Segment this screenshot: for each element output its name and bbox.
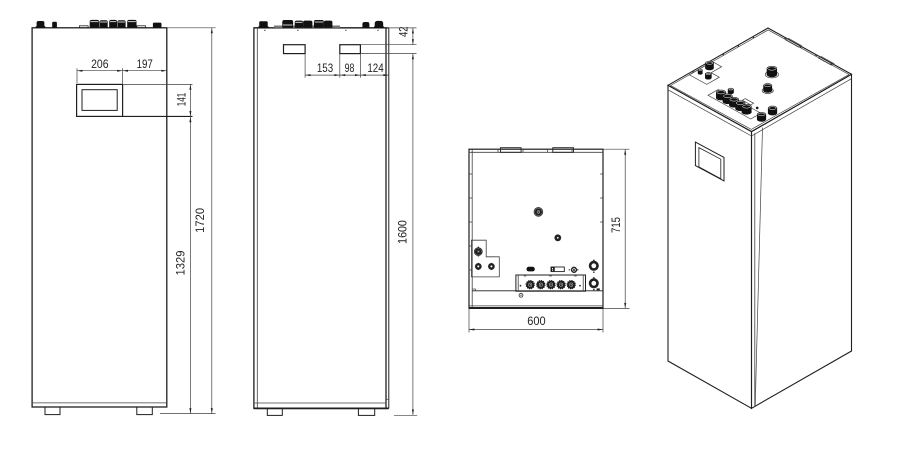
svg-text:124: 124 xyxy=(367,61,383,75)
svg-text:206: 206 xyxy=(91,57,109,71)
svg-text:42: 42 xyxy=(397,26,411,37)
svg-text:1600: 1600 xyxy=(396,220,410,244)
svg-text:600: 600 xyxy=(527,314,546,328)
svg-text:715: 715 xyxy=(609,217,623,233)
svg-text:98: 98 xyxy=(345,61,355,75)
svg-text:153: 153 xyxy=(317,61,333,75)
svg-text:1720: 1720 xyxy=(193,208,207,233)
svg-text:141: 141 xyxy=(174,93,188,107)
svg-text:1329: 1329 xyxy=(174,250,188,275)
svg-text:197: 197 xyxy=(137,57,153,71)
